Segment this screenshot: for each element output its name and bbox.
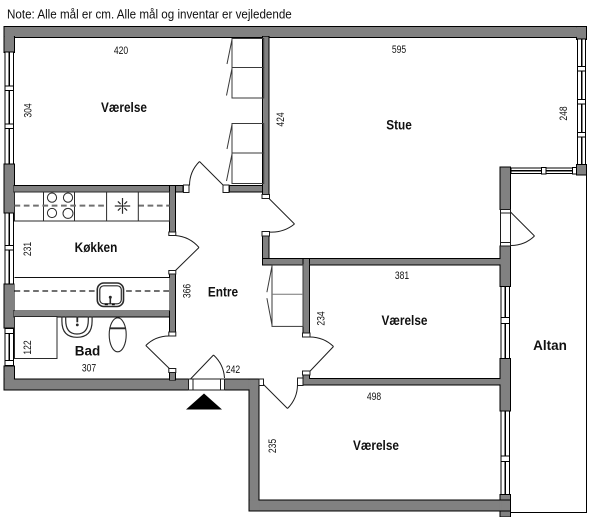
svg-text:Entre: Entre [208, 285, 238, 300]
svg-text:Note: Alle mål er cm. Alle mål: Note: Alle mål er cm. Alle mål og invent… [7, 7, 292, 21]
svg-text:304: 304 [23, 103, 35, 118]
svg-text:Stue: Stue [386, 118, 412, 133]
svg-text:Værelse: Værelse [382, 313, 428, 328]
svg-text:424: 424 [275, 112, 287, 127]
svg-text:307: 307 [82, 362, 96, 374]
svg-text:366: 366 [182, 283, 194, 298]
svg-text:Værelse: Værelse [353, 438, 399, 453]
svg-text:122: 122 [22, 340, 34, 354]
svg-text:Bad: Bad [75, 343, 101, 358]
svg-text:235: 235 [267, 438, 279, 453]
svg-text:381: 381 [395, 270, 409, 282]
svg-text:248: 248 [558, 106, 570, 121]
svg-text:Køkken: Køkken [75, 240, 118, 255]
svg-text:595: 595 [392, 44, 407, 56]
svg-text:234: 234 [316, 311, 328, 326]
svg-text:Altan: Altan [533, 338, 567, 353]
svg-text:420: 420 [114, 45, 129, 57]
svg-text:Værelse: Værelse [101, 100, 147, 115]
svg-text:231: 231 [22, 242, 34, 256]
svg-text:242: 242 [226, 364, 240, 376]
svg-text:498: 498 [367, 391, 382, 403]
